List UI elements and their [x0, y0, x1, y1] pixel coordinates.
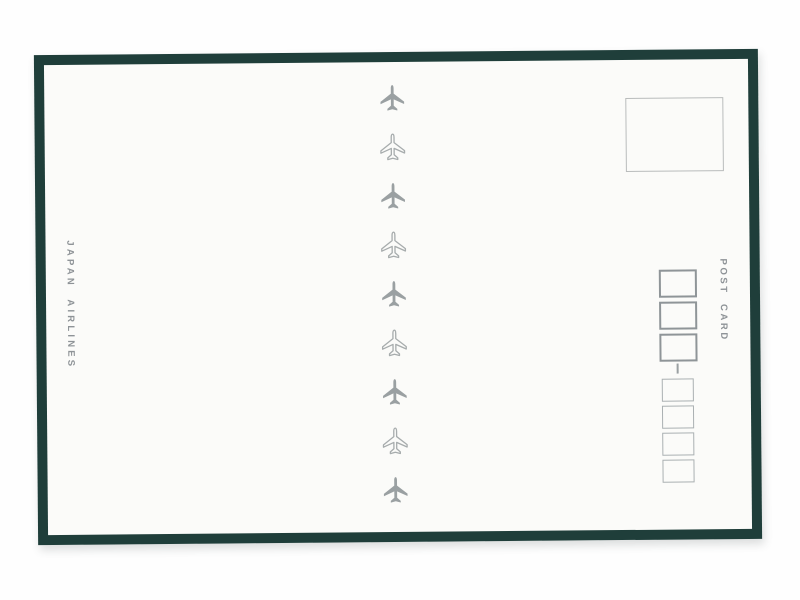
airplane-icon	[381, 476, 411, 506]
airplane-icon	[380, 427, 410, 457]
plane-column	[377, 84, 411, 506]
postal-code-box-small	[662, 432, 694, 455]
airplane-icon	[377, 84, 407, 114]
postal-code-box-small	[662, 405, 694, 428]
postal-code-box-large	[659, 269, 697, 297]
airplane-icon	[379, 329, 409, 359]
airplane-icon	[378, 231, 408, 261]
postal-code-box-large	[659, 333, 697, 361]
postal-code-dash	[677, 364, 679, 374]
airplane-icon	[380, 378, 410, 408]
airplane-icon	[378, 182, 408, 212]
postal-code-box-large	[659, 301, 697, 329]
postal-code-boxes-small	[662, 378, 695, 482]
airplane-icon	[379, 280, 409, 310]
stamp-box	[625, 97, 724, 172]
postcard: JAPAN AIRLINES POST CARD	[34, 49, 762, 545]
airplane-icon	[378, 133, 408, 163]
postal-code-box-small	[662, 459, 694, 482]
postal-code-boxes-large	[659, 269, 698, 361]
scan-background: JAPAN AIRLINES POST CARD	[0, 0, 800, 600]
brand-vertical-text: JAPAN AIRLINES	[65, 240, 76, 369]
postal-code-box-small	[662, 378, 694, 401]
postcard-label: POST CARD	[718, 258, 728, 341]
